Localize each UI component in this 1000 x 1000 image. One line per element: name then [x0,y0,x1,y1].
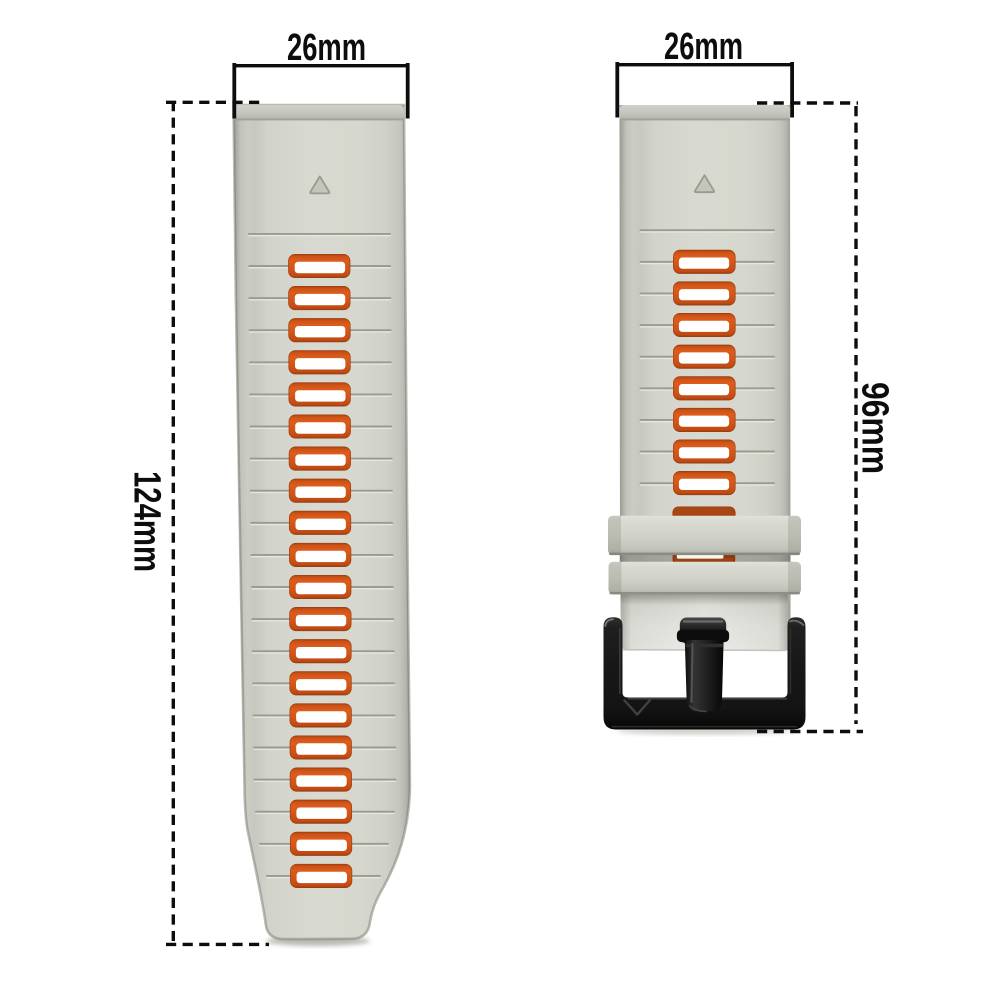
svg-text:26mm: 26mm [287,27,366,69]
svg-text:124mm: 124mm [126,471,168,572]
svg-text:26mm: 26mm [664,26,743,68]
svg-text:96mm: 96mm [854,382,896,474]
